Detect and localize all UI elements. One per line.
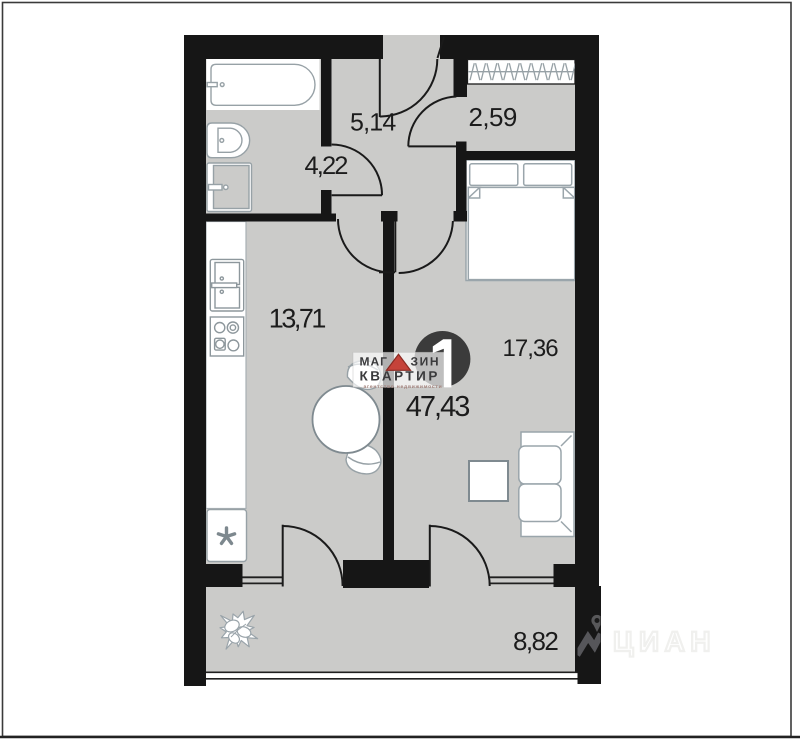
svg-text:ЦИАН: ЦИАН	[613, 626, 716, 657]
svg-text:13,71: 13,71	[269, 304, 326, 334]
svg-text:МАГ: МАГ	[360, 354, 388, 368]
svg-text:КВАРТИР: КВАРТИР	[360, 368, 440, 383]
svg-text:ЗИН: ЗИН	[411, 354, 441, 368]
svg-text:агентство недвижимости: агентство недвижимости	[364, 384, 443, 390]
svg-text:8,82: 8,82	[513, 626, 558, 656]
svg-text:2,59: 2,59	[469, 102, 517, 132]
svg-text:47,43: 47,43	[406, 391, 469, 423]
svg-text:17,36: 17,36	[503, 335, 559, 362]
svg-text:4,22: 4,22	[305, 152, 348, 180]
svg-text:5,14: 5,14	[350, 109, 396, 137]
